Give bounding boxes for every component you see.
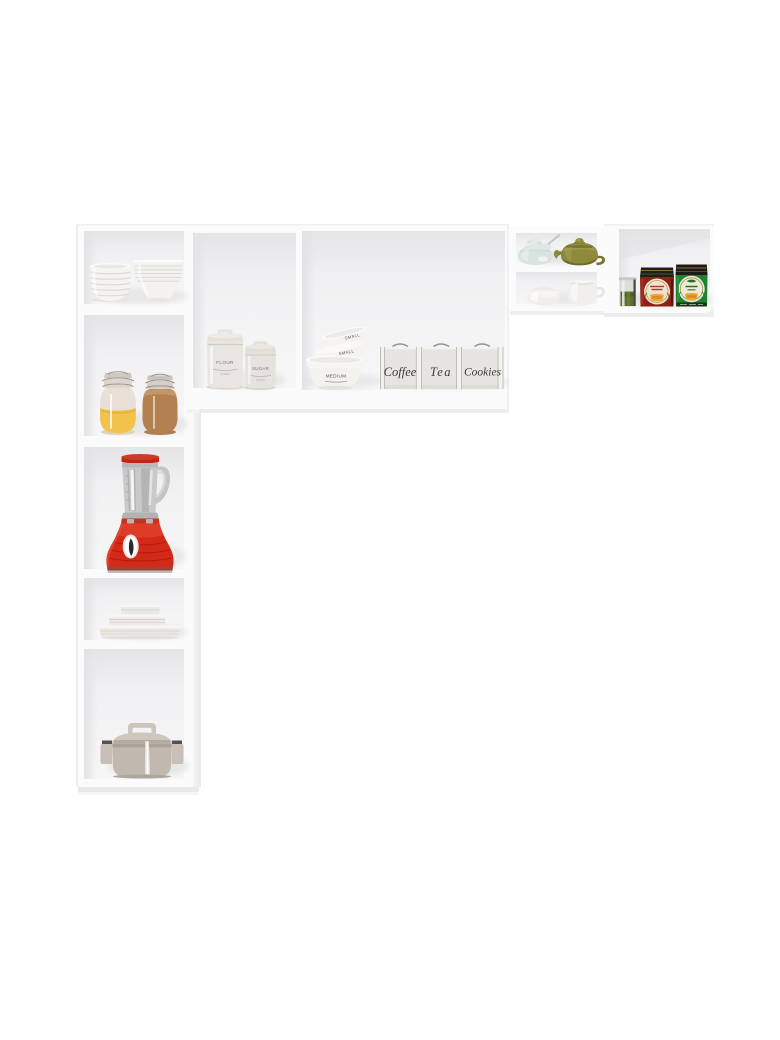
svg-text:Cookies: Cookies [464,367,502,379]
svg-text:SUGAR: SUGAR [252,366,269,371]
svg-text:MEDIUM: MEDIUM [326,374,346,379]
svg-text:Tea: Tea [430,365,452,379]
svg-text:FLOUR: FLOUR [216,360,234,365]
svg-text:Coffee: Coffee [384,365,417,379]
